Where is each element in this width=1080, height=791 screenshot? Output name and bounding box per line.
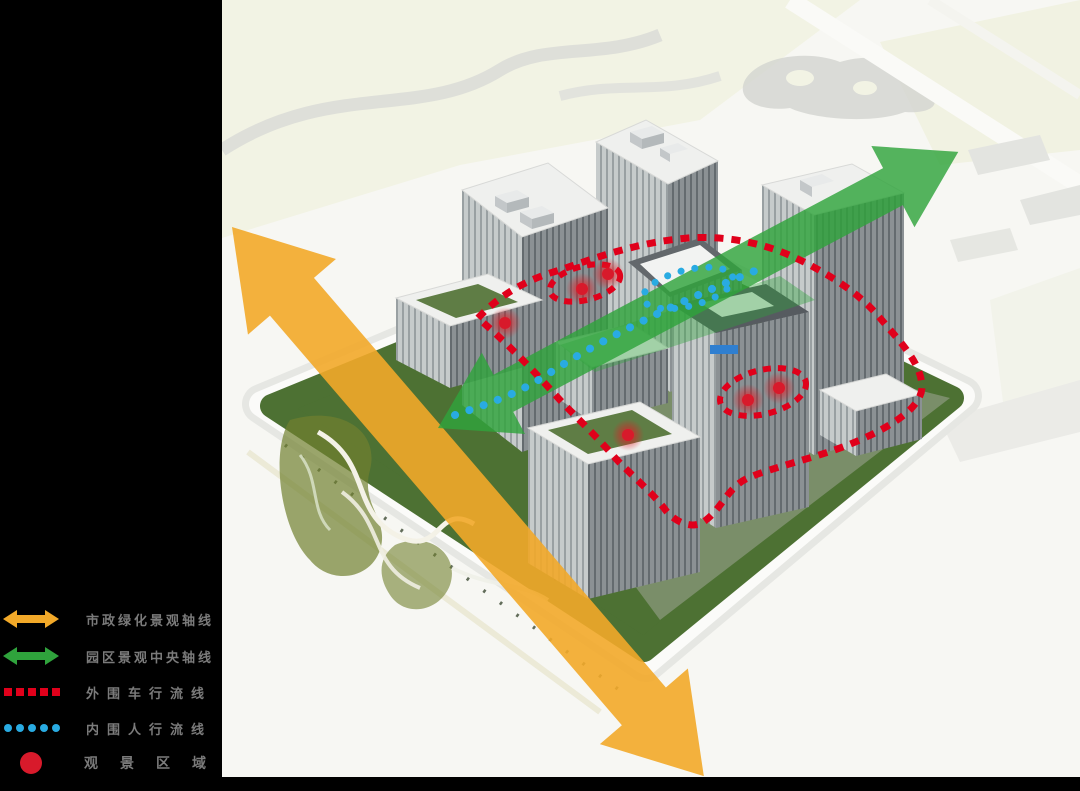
legend-label-municipal-axis: 市政绿化景观轴线 — [86, 610, 214, 629]
legend-label-vehicle-route: 外围车行流线 — [86, 683, 212, 702]
dotted-line-blue-icon — [2, 716, 60, 740]
tower-logo-sign — [710, 345, 738, 354]
filled-circle-red-icon — [2, 749, 60, 777]
site-plan-map — [222, 0, 1080, 777]
legend-label-viewing-area: 观景区域 — [84, 753, 228, 773]
legend-item-municipal-axis: 市政绿化景观轴线 — [0, 606, 214, 632]
double-arrow-green-icon — [2, 644, 60, 668]
dashed-line-red-icon — [2, 680, 60, 704]
legend-item-park-axis: 园区景观中央轴线 — [0, 643, 214, 669]
legend-item-vehicle-route: 外围车行流线 — [0, 679, 212, 705]
legend-item-viewing-area: 观景区域 — [0, 750, 228, 776]
legend-label-pedestrian-route: 内围人行流线 — [86, 719, 212, 738]
legend: 市政绿化景观轴线 园区景观中央轴线 外围车行流线 — [0, 598, 222, 791]
legend-item-pedestrian-route: 内围人行流线 — [0, 715, 212, 741]
legend-label-park-axis: 园区景观中央轴线 — [86, 647, 214, 666]
analysis-diagram-page: 市政绿化景观轴线 园区景观中央轴线 外围车行流线 — [0, 0, 1080, 791]
site-plan-svg — [222, 0, 1080, 777]
double-arrow-yellow-icon — [2, 607, 60, 631]
